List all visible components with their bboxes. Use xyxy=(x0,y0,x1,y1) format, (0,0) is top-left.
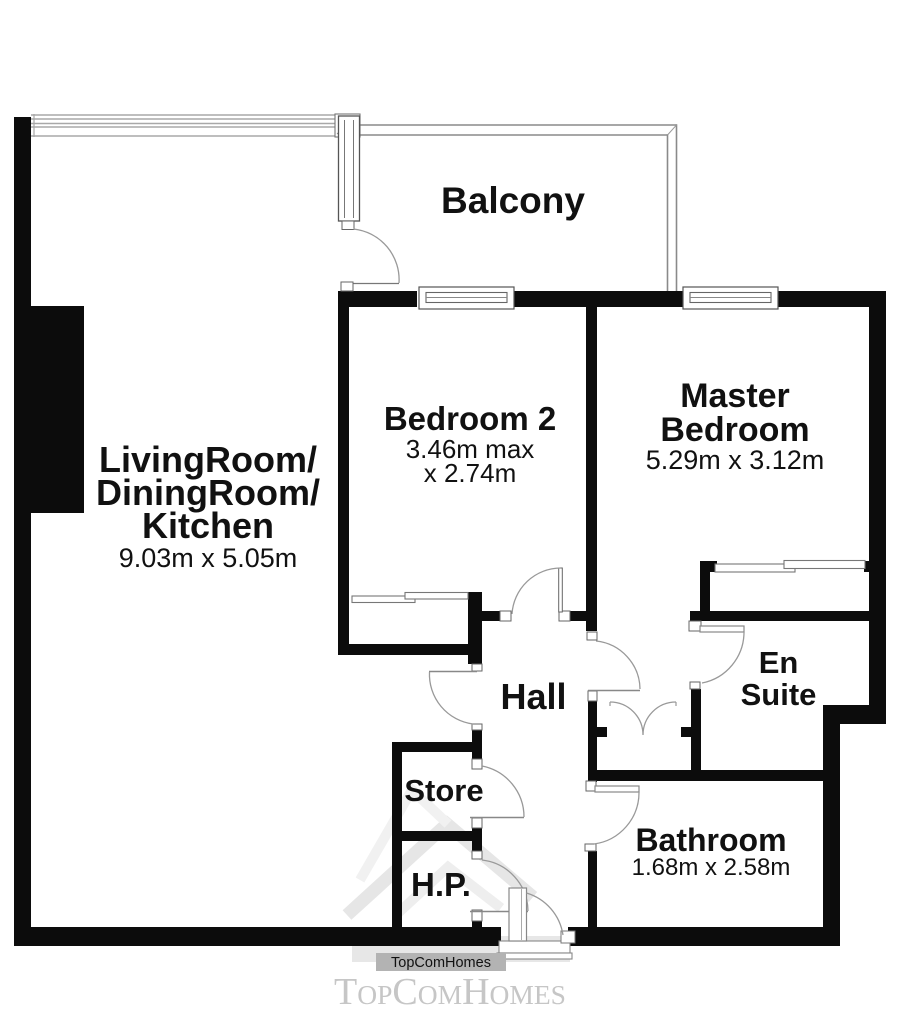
svg-text:H.P.: H.P. xyxy=(411,866,471,903)
svg-text:Bedroom 2: Bedroom 2 xyxy=(384,400,556,437)
svg-text:9.03m x 5.05m: 9.03m x 5.05m xyxy=(119,543,298,573)
svg-text:Suite: Suite xyxy=(741,677,817,712)
svg-text:TopComHomes: TopComHomes xyxy=(391,955,491,971)
svg-text:Hall: Hall xyxy=(500,676,566,717)
svg-text:En: En xyxy=(759,645,799,680)
svg-text:Kitchen: Kitchen xyxy=(142,505,274,546)
svg-text:Bedroom: Bedroom xyxy=(660,411,809,449)
svg-text:x 2.74m: x 2.74m xyxy=(424,458,517,488)
svg-text:Master: Master xyxy=(680,377,790,415)
svg-text:Bathroom: Bathroom xyxy=(635,822,786,858)
svg-text:Store: Store xyxy=(404,773,483,808)
svg-text:Balcony: Balcony xyxy=(441,180,585,221)
svg-text:1.68m x 2.58m: 1.68m x 2.58m xyxy=(632,854,791,881)
svg-text:5.29m x 3.12m: 5.29m x 3.12m xyxy=(646,445,825,475)
